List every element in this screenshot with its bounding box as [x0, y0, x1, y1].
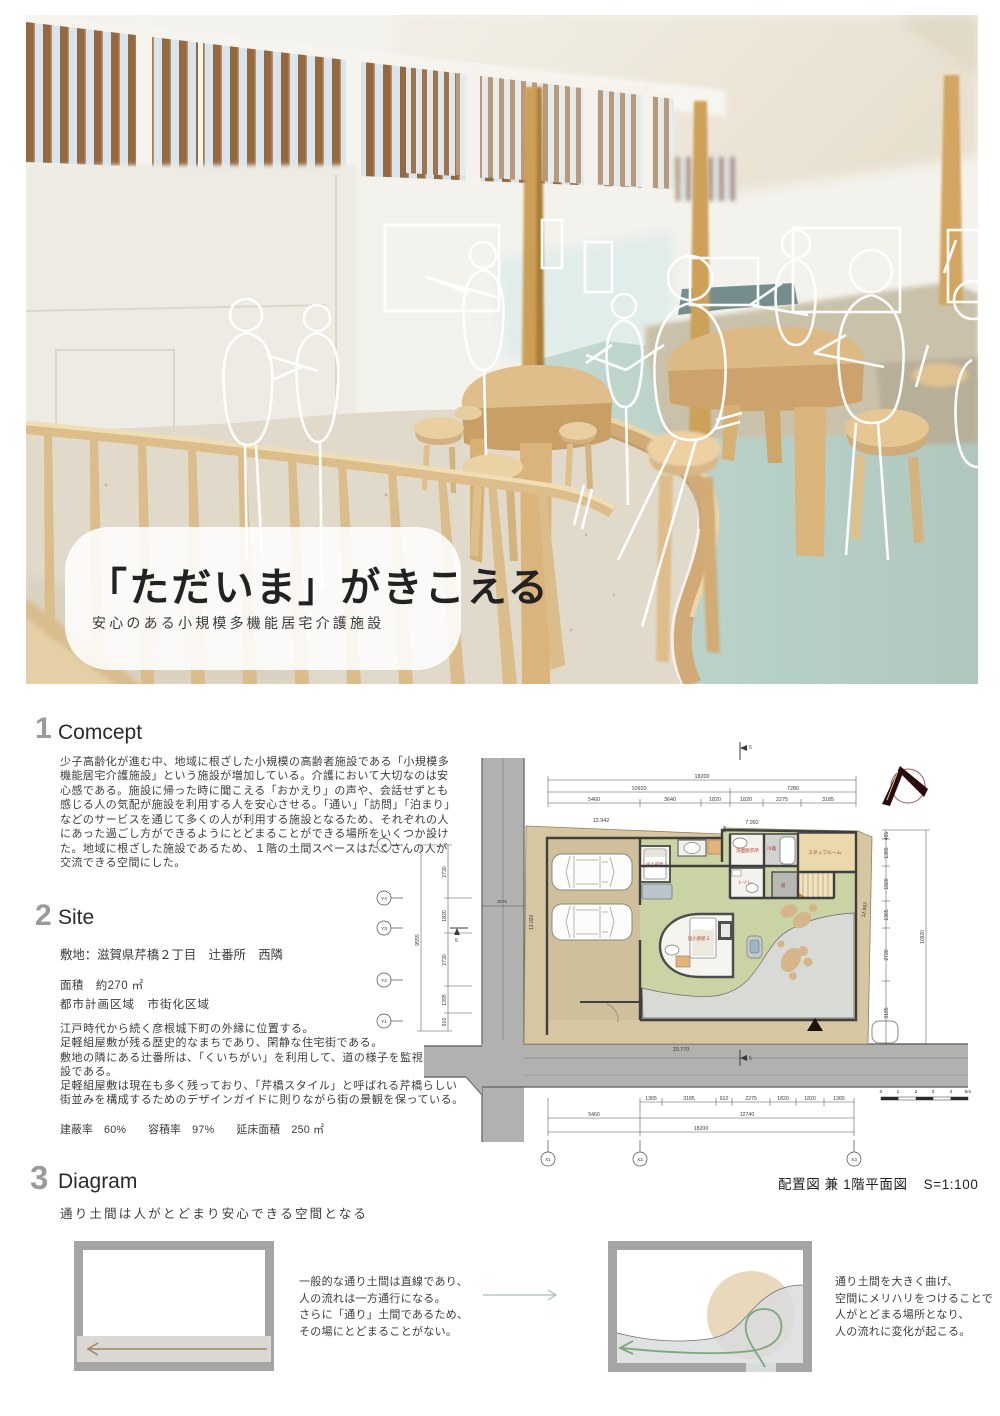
svg-text:1820: 1820	[777, 1096, 789, 1102]
svg-text:20.770: 20.770	[673, 1047, 690, 1053]
svg-text:3185: 3185	[884, 1007, 890, 1018]
svg-text:10920: 10920	[632, 786, 647, 792]
svg-text:居小部屋２: 居小部屋２	[688, 935, 710, 942]
svg-text:2: 2	[915, 1089, 918, 1095]
svg-text:7.992: 7.992	[745, 820, 759, 826]
svg-text:9555: 9555	[415, 934, 421, 946]
svg-text:X2: X2	[637, 1157, 643, 1163]
svg-text:3575: 3575	[497, 899, 507, 904]
svg-text:0: 0	[880, 1089, 883, 1095]
svg-text:2275: 2275	[745, 1096, 757, 1102]
svg-text:Y1: Y1	[381, 1019, 387, 1025]
svg-text:Y5: Y5	[381, 843, 387, 849]
svg-text:X3: X3	[851, 1157, 857, 1163]
svg-text:18200: 18200	[694, 1126, 709, 1132]
svg-text:4: 4	[950, 1089, 953, 1095]
svg-text:Y4: Y4	[381, 896, 387, 902]
svg-text:1365: 1365	[884, 909, 890, 920]
svg-text:2275: 2275	[776, 797, 788, 803]
svg-text:5m: 5m	[965, 1089, 972, 1095]
svg-text:1820: 1820	[442, 910, 448, 922]
svg-text:12740: 12740	[740, 1112, 755, 1118]
svg-text:3185: 3185	[683, 1096, 695, 1102]
svg-text:455: 455	[884, 832, 890, 841]
svg-text:1820: 1820	[740, 797, 752, 803]
svg-text:5460: 5460	[588, 1112, 600, 1118]
svg-text:1: 1	[897, 1089, 900, 1095]
svg-text:18200: 18200	[695, 774, 710, 780]
svg-text:3: 3	[932, 1089, 935, 1095]
svg-text:スタッフルーム: スタッフルーム	[808, 849, 842, 856]
svg-text:5: 5	[749, 745, 752, 751]
svg-text:910: 910	[720, 1096, 729, 1102]
svg-text:1365: 1365	[833, 1096, 845, 1102]
svg-text:洗面脱衣所: 洗面脱衣所	[736, 847, 759, 854]
svg-text:収: 収	[781, 882, 786, 889]
svg-text:13.020: 13.020	[529, 914, 535, 930]
svg-text:トイレ: トイレ	[738, 880, 752, 885]
svg-text:1820: 1820	[884, 878, 890, 889]
svg-text:5: 5	[749, 1056, 752, 1062]
svg-text:1365: 1365	[884, 847, 890, 858]
svg-text:Y3: Y3	[381, 926, 387, 932]
svg-text:2730: 2730	[442, 866, 448, 878]
svg-text:X1: X1	[545, 1157, 551, 1163]
svg-text:1820: 1820	[804, 1096, 816, 1102]
svg-text:3640: 3640	[664, 797, 676, 803]
svg-text:Y2: Y2	[381, 978, 387, 984]
svg-text:910: 910	[442, 1018, 448, 1027]
svg-text:729: 729	[722, 825, 727, 833]
svg-text:2730: 2730	[884, 949, 890, 960]
svg-text:1395: 1395	[442, 994, 448, 1006]
svg-text:1365: 1365	[645, 1096, 657, 1102]
svg-text:10920: 10920	[920, 930, 926, 944]
svg-text:7280: 7280	[787, 786, 799, 792]
svg-text:2730: 2730	[442, 954, 448, 966]
svg-text:5460: 5460	[588, 797, 600, 803]
svg-text:12.942: 12.942	[593, 818, 610, 824]
svg-text:3185: 3185	[822, 797, 834, 803]
svg-text:1820: 1820	[709, 797, 721, 803]
svg-text:5: 5	[455, 938, 458, 944]
svg-text:冷蔵: 冷蔵	[767, 845, 777, 852]
